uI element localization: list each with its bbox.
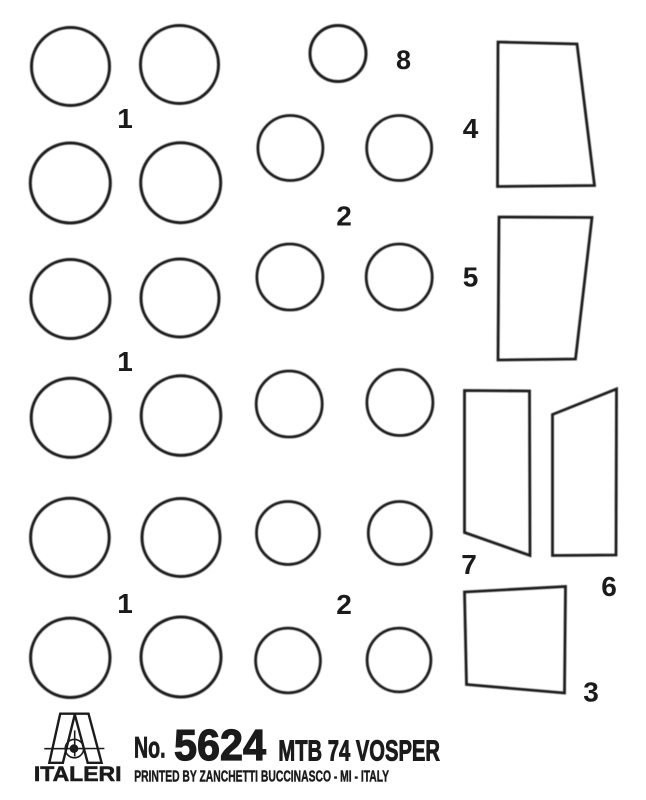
svg-text:8: 8 [396,45,411,75]
svg-text:4: 4 [463,113,479,144]
svg-text:5624: 5624 [174,721,266,770]
svg-text:2: 2 [336,201,352,232]
svg-text:3: 3 [583,677,599,708]
svg-text:1: 1 [117,103,133,134]
svg-text:1: 1 [117,588,133,619]
svg-text:ITALERI: ITALERI [34,762,122,786]
svg-text:2: 2 [336,589,352,620]
svg-text:MTB 74 VOSPER: MTB 74 VOSPER [278,736,440,768]
svg-text:7: 7 [461,549,477,580]
svg-text:1: 1 [117,346,133,377]
svg-text:PRINTED BY ZANCHETTI BUCCINASC: PRINTED BY ZANCHETTI BUCCINASCO - MI - I… [134,769,389,786]
svg-text:No.: No. [134,732,166,765]
svg-text:6: 6 [601,571,617,602]
svg-text:5: 5 [463,262,479,293]
